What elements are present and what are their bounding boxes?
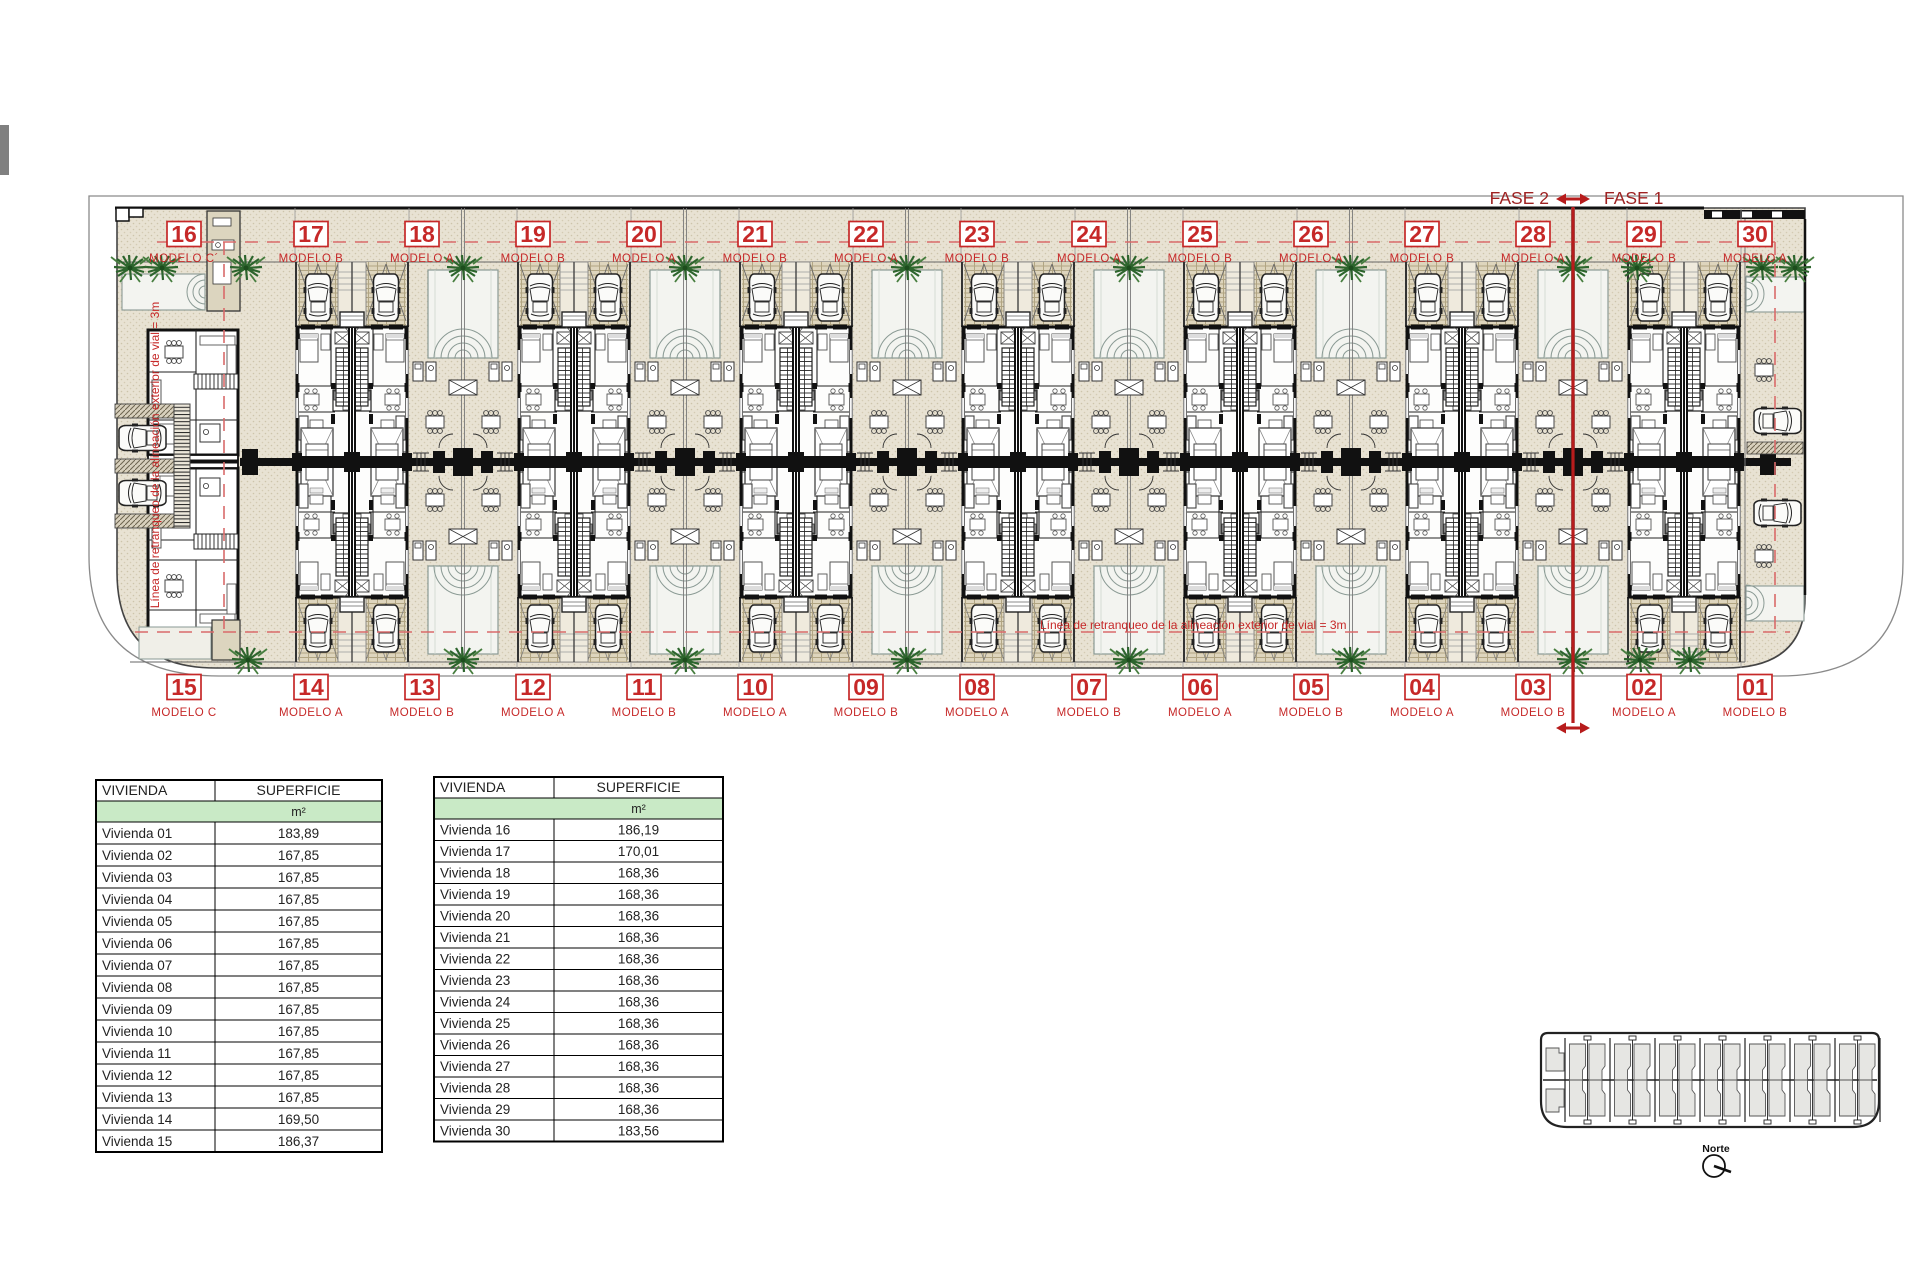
svg-text:24: 24 (1076, 221, 1102, 247)
svg-text:Vivienda 28: Vivienda 28 (440, 1081, 510, 1096)
svg-text:MODELO A: MODELO A (612, 253, 676, 265)
svg-text:MODELO A: MODELO A (390, 253, 454, 265)
svg-text:168,36: 168,36 (618, 1016, 659, 1031)
svg-text:Vivienda 10: Vivienda 10 (102, 1024, 172, 1039)
svg-text:MODELO A: MODELO A (723, 707, 787, 719)
svg-text:29: 29 (1631, 221, 1657, 247)
svg-text:186,37: 186,37 (278, 1134, 319, 1149)
svg-text:Vivienda 12: Vivienda 12 (102, 1068, 172, 1083)
svg-text:MODELO B: MODELO B (1723, 707, 1788, 719)
svg-text:MODELO B: MODELO B (1279, 707, 1344, 719)
svg-text:MODELO B: MODELO B (1057, 707, 1122, 719)
svg-text:MODELO B: MODELO B (612, 707, 677, 719)
svg-text:168,36: 168,36 (618, 930, 659, 945)
svg-text:VIVIENDA: VIVIENDA (440, 779, 506, 795)
svg-text:167,85: 167,85 (278, 870, 319, 885)
svg-text:Vivienda 19: Vivienda 19 (440, 887, 510, 902)
svg-text:Vivienda 07: Vivienda 07 (102, 958, 172, 973)
svg-text:170,01: 170,01 (618, 844, 659, 859)
svg-text:167,85: 167,85 (278, 980, 319, 995)
svg-text:167,85: 167,85 (278, 1002, 319, 1017)
svg-text:MODELO B: MODELO B (1390, 253, 1455, 265)
svg-text:Vivienda 11: Vivienda 11 (102, 1046, 171, 1061)
svg-text:19: 19 (520, 221, 546, 247)
svg-text:14: 14 (298, 674, 324, 700)
svg-text:Vivienda 20: Vivienda 20 (440, 909, 510, 924)
svg-text:m²: m² (291, 805, 306, 819)
svg-text:Vivienda 24: Vivienda 24 (440, 995, 511, 1010)
svg-text:Vivienda 03: Vivienda 03 (102, 870, 172, 885)
svg-text:MODELO A: MODELO A (1390, 707, 1454, 719)
svg-text:168,36: 168,36 (618, 1081, 659, 1096)
svg-text:167,85: 167,85 (278, 1046, 319, 1061)
svg-text:Vivienda 13: Vivienda 13 (102, 1090, 172, 1105)
svg-text:SUPERFICIE: SUPERFICIE (256, 782, 340, 798)
svg-text:Vivienda 21: Vivienda 21 (440, 930, 510, 945)
svg-text:MODELO A: MODELO A (1612, 707, 1676, 719)
svg-text:167,85: 167,85 (278, 1068, 319, 1083)
svg-text:m²: m² (631, 802, 646, 816)
svg-text:09: 09 (853, 674, 879, 700)
svg-text:Vivienda 02: Vivienda 02 (102, 848, 172, 863)
svg-text:FASE 1: FASE 1 (1604, 188, 1663, 208)
svg-text:Vivienda 16: Vivienda 16 (440, 823, 510, 838)
svg-text:Vivienda 17: Vivienda 17 (440, 844, 510, 859)
svg-text:10: 10 (742, 674, 768, 700)
svg-text:MODELO B: MODELO B (390, 707, 455, 719)
svg-text:167,85: 167,85 (278, 848, 319, 863)
svg-text:MODELO A: MODELO A (1723, 253, 1787, 265)
svg-text:13: 13 (409, 674, 435, 700)
svg-text:20: 20 (631, 221, 657, 247)
svg-text:MODELO C: MODELO C (151, 707, 216, 719)
svg-text:168,36: 168,36 (618, 1059, 659, 1074)
svg-text:MODELO A: MODELO A (279, 707, 343, 719)
svg-text:MODELO B: MODELO B (834, 707, 899, 719)
svg-text:Norte: Norte (1702, 1143, 1730, 1155)
svg-text:Línea de retranqueo de la alin: Línea de retranqueo de la alineación ext… (1040, 618, 1347, 632)
svg-text:SUPERFICIE: SUPERFICIE (596, 779, 680, 795)
svg-text:VIVIENDA: VIVIENDA (102, 782, 168, 798)
svg-text:Vivienda 23: Vivienda 23 (440, 973, 510, 988)
svg-text:167,85: 167,85 (278, 936, 319, 951)
svg-text:167,85: 167,85 (278, 1024, 319, 1039)
svg-text:168,36: 168,36 (618, 995, 659, 1010)
svg-text:08: 08 (964, 674, 990, 700)
svg-text:MODELO A: MODELO A (1501, 253, 1565, 265)
svg-text:MODELO A: MODELO A (834, 253, 898, 265)
svg-text:MODELO B: MODELO B (501, 253, 566, 265)
svg-text:MODELO A: MODELO A (1168, 707, 1232, 719)
svg-text:27: 27 (1409, 221, 1435, 247)
svg-text:168,36: 168,36 (618, 1038, 659, 1053)
svg-text:MODELO A: MODELO A (1279, 253, 1343, 265)
svg-text:Línea de retranqueo de la alin: Línea de retranqueo de la alineación ext… (148, 302, 162, 609)
svg-text:Vivienda 27: Vivienda 27 (440, 1059, 510, 1074)
svg-text:186,19: 186,19 (618, 823, 659, 838)
svg-text:MODELO B: MODELO B (945, 253, 1010, 265)
svg-text:167,85: 167,85 (278, 914, 319, 929)
svg-text:04: 04 (1409, 674, 1435, 700)
svg-text:28: 28 (1520, 221, 1546, 247)
svg-text:07: 07 (1076, 674, 1102, 700)
svg-text:05: 05 (1298, 674, 1324, 700)
svg-text:Vivienda 22: Vivienda 22 (440, 952, 510, 967)
svg-text:Vivienda 29: Vivienda 29 (440, 1102, 510, 1117)
svg-text:168,36: 168,36 (618, 973, 659, 988)
svg-text:Vivienda 01: Vivienda 01 (102, 826, 172, 841)
svg-text:26: 26 (1298, 221, 1324, 247)
svg-text:21: 21 (742, 221, 768, 247)
svg-text:Vivienda 30: Vivienda 30 (440, 1124, 510, 1139)
svg-text:16: 16 (171, 221, 197, 247)
svg-text:MODELO B: MODELO B (1168, 253, 1233, 265)
svg-text:18: 18 (409, 221, 435, 247)
svg-text:MODELO C´: MODELO C´ (149, 253, 219, 265)
svg-text:06: 06 (1187, 674, 1213, 700)
svg-text:12: 12 (520, 674, 546, 700)
svg-text:Vivienda 06: Vivienda 06 (102, 936, 172, 951)
svg-text:03: 03 (1520, 674, 1546, 700)
svg-text:MODELO A: MODELO A (501, 707, 565, 719)
svg-text:Vivienda 08: Vivienda 08 (102, 980, 172, 995)
svg-text:01: 01 (1742, 674, 1768, 700)
svg-text:183,89: 183,89 (278, 826, 319, 841)
svg-text:MODELO A: MODELO A (945, 707, 1009, 719)
svg-text:MODELO B: MODELO B (1612, 253, 1677, 265)
svg-text:15: 15 (171, 674, 197, 700)
svg-text:168,36: 168,36 (618, 952, 659, 967)
svg-text:25: 25 (1187, 221, 1213, 247)
svg-text:168,36: 168,36 (618, 887, 659, 902)
svg-text:Vivienda 25: Vivienda 25 (440, 1016, 510, 1031)
svg-text:Vivienda 05: Vivienda 05 (102, 914, 172, 929)
svg-text:168,36: 168,36 (618, 866, 659, 881)
svg-text:23: 23 (964, 221, 990, 247)
svg-text:169,50: 169,50 (278, 1112, 319, 1127)
svg-text:11: 11 (632, 674, 657, 700)
svg-text:FASE 2: FASE 2 (1490, 188, 1549, 208)
svg-text:MODELO B: MODELO B (723, 253, 788, 265)
svg-text:Vivienda 04: Vivienda 04 (102, 892, 173, 907)
svg-text:Vivienda 15: Vivienda 15 (102, 1134, 172, 1149)
svg-text:167,85: 167,85 (278, 1090, 319, 1105)
svg-text:MODELO B: MODELO B (1501, 707, 1566, 719)
svg-text:168,36: 168,36 (618, 909, 659, 924)
svg-text:Vivienda 09: Vivienda 09 (102, 1002, 172, 1017)
svg-text:22: 22 (853, 221, 879, 247)
svg-text:Vivienda 14: Vivienda 14 (102, 1112, 173, 1127)
svg-text:167,85: 167,85 (278, 958, 319, 973)
svg-text:30: 30 (1742, 221, 1768, 247)
svg-text:17: 17 (298, 221, 324, 247)
svg-text:02: 02 (1631, 674, 1657, 700)
svg-text:MODELO A: MODELO A (1057, 253, 1121, 265)
svg-text:183,56: 183,56 (618, 1124, 659, 1139)
svg-text:MODELO B: MODELO B (279, 253, 344, 265)
svg-text:168,36: 168,36 (618, 1102, 659, 1117)
svg-text:167,85: 167,85 (278, 892, 319, 907)
svg-text:Vivienda 26: Vivienda 26 (440, 1038, 510, 1053)
svg-text:Vivienda 18: Vivienda 18 (440, 866, 510, 881)
